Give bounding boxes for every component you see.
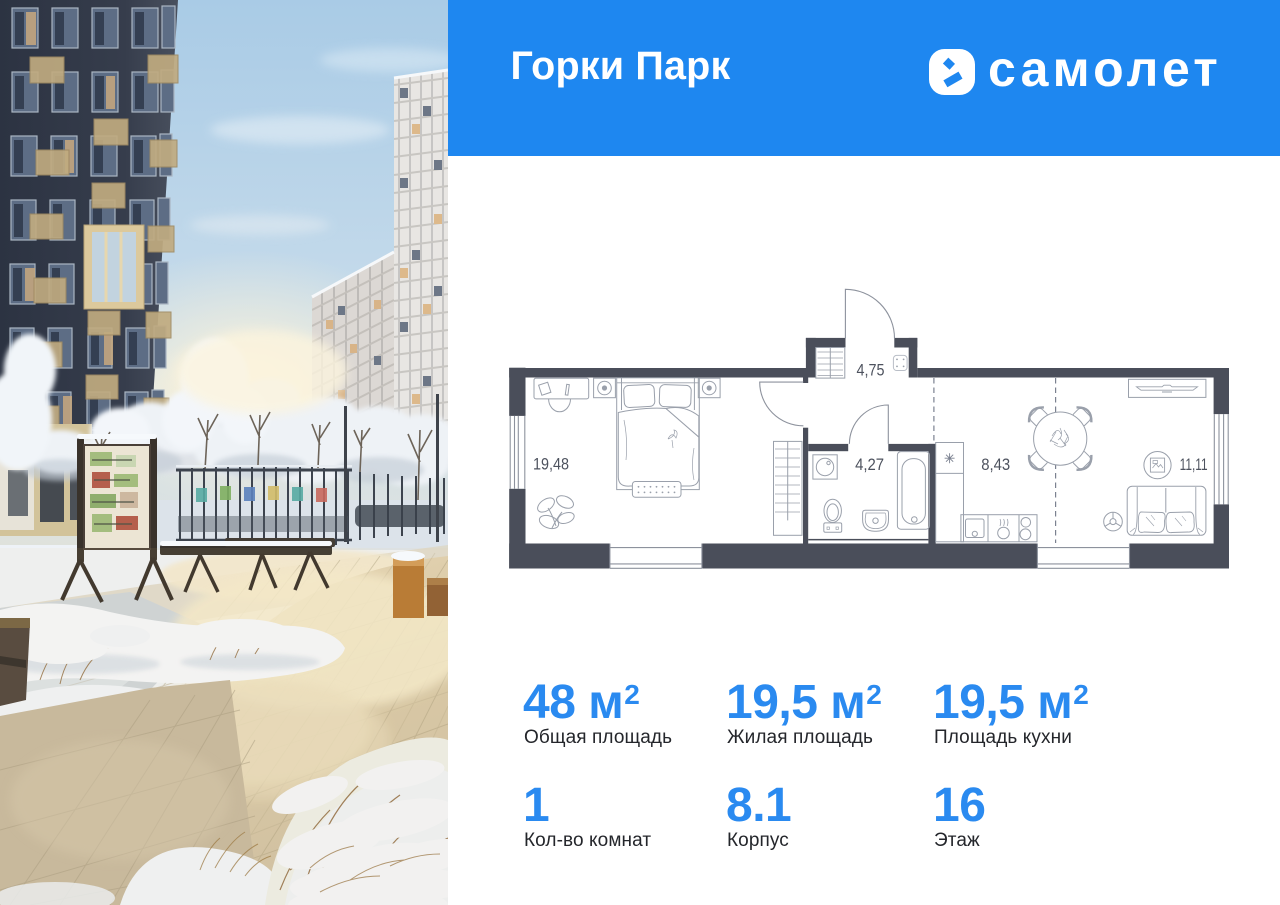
svg-text:8,43: 8,43 [981,455,1010,474]
svg-text:19,48: 19,48 [533,455,569,474]
svg-text:4,75: 4,75 [857,360,885,379]
svg-text:11,11: 11,11 [1180,455,1208,474]
svg-text:4,27: 4,27 [855,455,884,474]
